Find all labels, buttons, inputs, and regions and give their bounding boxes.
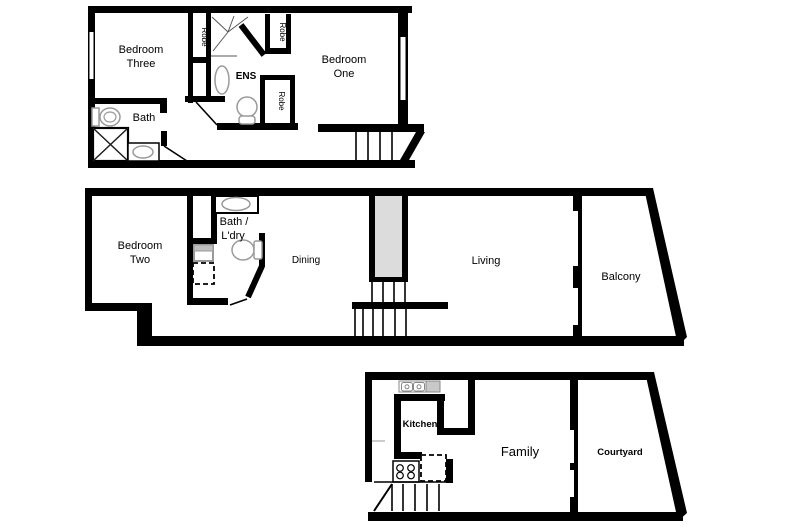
window-left: [90, 32, 94, 79]
room-label-robe-left: Robe: [200, 27, 209, 47]
courtyard-slanted-wall: [645, 372, 687, 521]
room-label-ens: ENS: [236, 71, 257, 82]
balcony-slanted-wall: [644, 188, 687, 346]
room-label-balcony: Balcony: [601, 271, 641, 283]
angled-wall: [248, 266, 262, 297]
ens-sink-icon: [215, 66, 229, 94]
room-label-bedroom-one-2: One: [334, 68, 355, 80]
upper-floor-plan: Bedroom Three Bedroom One Bath ENS Robe …: [88, 6, 425, 168]
sliding-door-panel-2: [578, 288, 582, 325]
upper-doors: [164, 102, 217, 161]
room-label-bedroom-two-2: Two: [130, 254, 150, 266]
room-label-robe-upper-right: Robe: [278, 22, 287, 42]
bath-vanity-icon: [128, 143, 159, 161]
kitchen-sink-icon: [399, 381, 440, 392]
laundry-sink-icon: [222, 198, 250, 211]
room-label-bath-laundry: Bath /: [220, 216, 250, 228]
room-label-robe-lower-right: Robe: [277, 91, 286, 111]
room-label-living: Living: [472, 255, 501, 267]
window-right: [401, 37, 406, 100]
ground-floor-plan: Kitchen Family Courtyard: [365, 372, 687, 521]
middle-stairs: [352, 196, 448, 336]
bath-shower-icon: [93, 128, 128, 161]
appliance-space-dashed: [193, 263, 214, 284]
floor-plan-drawing: Bedroom Three Bedroom One Bath ENS Robe …: [0, 0, 790, 527]
fridge-space-dashed: [421, 455, 446, 481]
cooktop-icon: [393, 461, 419, 482]
upper-stairs: [356, 132, 392, 160]
ens-toilet-icon: [237, 97, 257, 124]
room-label-bedroom-three: Bedroom: [119, 44, 164, 56]
room-label-bedroom-two: Bedroom: [118, 240, 163, 252]
floor-plan-page: Bedroom Three Bedroom One Bath ENS Robe …: [0, 0, 790, 527]
room-label-family: Family: [501, 444, 540, 459]
room-label-bedroom-one: Bedroom: [322, 54, 367, 66]
bath-laundry-fixtures: [193, 196, 262, 305]
bath-laundry-door: [230, 299, 247, 305]
bath-toilet-icon: [92, 108, 120, 126]
ens-shower-icon: [211, 16, 264, 56]
room-label-courtyard: Courtyard: [597, 447, 643, 458]
laundry-toilet-icon: [232, 240, 262, 260]
room-label-kitchen: Kitchen: [403, 419, 438, 430]
sliding-door-panel: [578, 211, 582, 266]
room-label-dining: Dining: [292, 255, 320, 266]
room-label-bath-laundry-2: L'dry: [221, 230, 245, 242]
washer-icon: [194, 245, 213, 261]
room-label-bedroom-three-2: Three: [127, 58, 156, 70]
stair-shaft: [375, 196, 402, 277]
room-label-bath: Bath: [133, 112, 156, 124]
middle-floor-plan: Bedroom Two Bath / L'dry Dining Living B…: [85, 188, 687, 346]
